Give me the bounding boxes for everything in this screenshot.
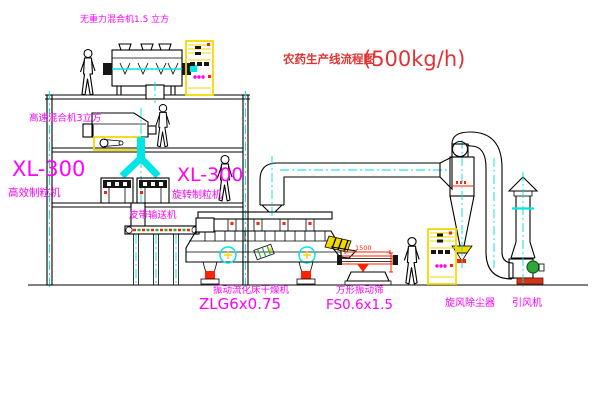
label-cyclone: 旋风除尘器: [445, 296, 495, 309]
dryer-inlet-box: [196, 218, 214, 232]
label-granulator-left-model: XL-300: [12, 157, 85, 181]
label-high-speed-mixer: 高速混合机3立方: [29, 112, 102, 124]
granulator-right: [137, 178, 169, 203]
dryer-leg-right: [297, 262, 315, 284]
control-cabinet-dryer: [428, 229, 456, 284]
exhaust-duct: [260, 156, 452, 216]
cyclone-separator: [450, 140, 474, 270]
diagram-title-capacity: (500kg/h): [363, 47, 465, 71]
label-dryer-model: ZLG6x0.75: [199, 295, 281, 313]
spring-mounts: [203, 219, 314, 231]
sieve-deck: [341, 256, 393, 264]
process-flow-diagram: 1500 农药生产线流程图 (500kg/h) 无重力混合机1.5 立方 高速混…: [0, 0, 600, 403]
induced-draft-fan: [509, 259, 544, 284]
label-belt-conveyor: 皮带输送机: [129, 209, 177, 221]
dryer-hood: [198, 212, 332, 219]
belt-conveyor: [125, 226, 199, 285]
fluid-bed-dryer: [186, 212, 341, 284]
dimension-1500: 1500: [355, 244, 372, 252]
label-fan: 引风机: [512, 296, 542, 309]
person-figure: [156, 104, 169, 146]
label-granulator-right-name: 旋转制粒机: [172, 188, 222, 201]
label-sieve-model: FS0.6x1.5: [326, 297, 393, 313]
label-granulator-right-model: XL-300: [177, 164, 243, 186]
granulator-left: [101, 178, 133, 203]
label-sieve-name: 方形振动筛: [336, 284, 384, 296]
gravity-mixer: [103, 44, 197, 103]
label-gravity-mixer: 无重力混合机1.5 立方: [80, 13, 169, 25]
vibrating-sieve: 1500: [325, 236, 398, 285]
dryer-leg-left: [201, 262, 219, 284]
diagram-title: 农药生产线流程图: [282, 52, 375, 66]
cyclone-outlet-pipe: [452, 132, 513, 279]
person-figure: [81, 50, 96, 96]
flow-diagram-canvas: 1500 农药生产线流程图 (500kg/h) 无重力混合机1.5 立方 高速混…: [0, 0, 600, 403]
person-figure: [404, 238, 419, 284]
label-granulator-left-name: 高效制粒机: [8, 186, 61, 199]
dimension-lines: [345, 250, 393, 272]
